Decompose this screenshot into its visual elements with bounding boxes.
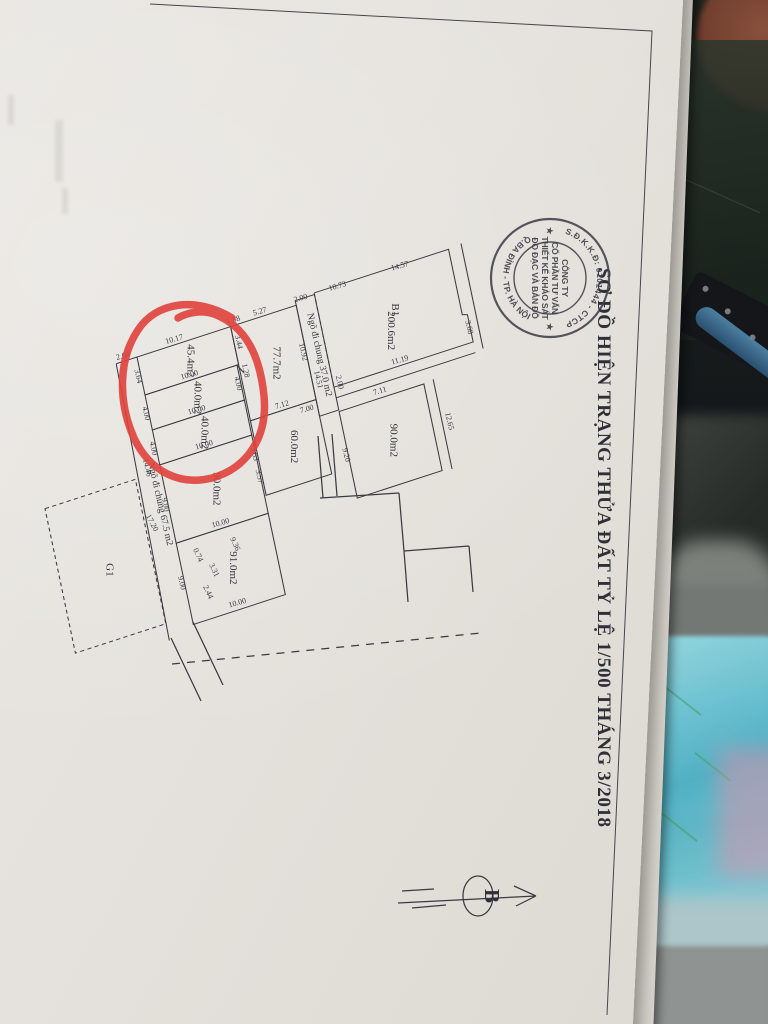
dimension-label: 0.74: [191, 547, 205, 563]
plot-linework: [19, 244, 520, 670]
dimension-label: 10.73: [327, 279, 347, 293]
plot-area-label: 200.6m2: [385, 311, 397, 350]
stamp-text-line: THIẾT KẾ KHẢO SÁT: [540, 236, 551, 320]
company-stamp: S.Đ.K.K.Đ: 0101444 - CTCP Q.BA ĐÌNH - TP…: [491, 219, 609, 337]
stamp-ring-text-bottom: Q.BA ĐÌNH - TP. HÀ NỘI: [501, 234, 533, 321]
dimension-label: 11.19: [390, 353, 409, 367]
dimension-label: 12.65: [443, 411, 456, 431]
stamp-text-line: CÔNG TY: [560, 259, 571, 297]
boundary-long-dashed: [172, 633, 481, 664]
printed-content-layer: SƠ ĐỒ HIỆN TRẠNG THỬA ĐẤT TỶ LỆ 1/500 TH…: [0, 0, 768, 1024]
dimension-label: 14.57: [390, 259, 410, 273]
plot-area-label: 90.0m2: [387, 424, 399, 457]
plot-area-label: 91.0m2: [227, 551, 239, 584]
dimension-label: 10.00: [194, 438, 214, 452]
stamp-text-line: ĐO ĐẠC VÀ BẢN ĐỒ: [530, 237, 541, 319]
dimension-label: 9.20: [340, 447, 352, 463]
dimension-label: 2.00: [293, 292, 309, 305]
dimension-label: 10.00: [179, 368, 199, 382]
photo-of-survey-document: { "title": { "text": "SƠ ĐỒ HIỆN TRẠNG T…: [0, 0, 768, 1024]
dimension-label: 3.64: [132, 368, 144, 384]
dimension-label: 10.00: [211, 516, 231, 530]
north-arrow-lines: [398, 886, 536, 908]
road-lower-left: [171, 622, 223, 701]
dimension-label: 9.00: [176, 575, 188, 591]
stamp-star-icon: ★: [545, 322, 555, 331]
dimension-label: 2.00: [334, 374, 346, 390]
north-arrow: B: [398, 876, 536, 916]
plot-area-label: 77.7m2: [270, 346, 282, 379]
dimension-label: 9.36: [228, 536, 242, 552]
plot-map: 45.4m2 40.0m2 40.0m2 90.0m2 91.0m2 77.7m…: [19, 244, 520, 701]
dimension-label: 4.00: [140, 406, 152, 422]
dimension-label: 3.57: [254, 469, 266, 485]
stamp-text-line: CỔ PHẦN TƯ VẤN: [550, 242, 561, 314]
svg-text:Q.BA ĐÌNH - TP. HÀ NỘI: Q.BA ĐÌNH - TP. HÀ NỘI: [501, 234, 533, 321]
dimension-label: 7.11: [372, 385, 388, 397]
plot-id-label: G1: [104, 563, 116, 576]
dimension-label: 2.44: [201, 584, 215, 600]
dimension-label: 10.00: [227, 596, 247, 610]
dimension-label: 4.00: [148, 441, 160, 457]
dimension-label: 4.00: [232, 376, 244, 392]
dimension-label: 3.31: [207, 562, 221, 578]
dimension-label: 10.17: [164, 332, 184, 346]
north-label: B: [480, 889, 504, 903]
plot-area-label: 60.0m2: [288, 430, 300, 463]
dimension-label: 10.00: [187, 403, 207, 417]
document-title: SƠ ĐỒ HIỆN TRẠNG THỬA ĐẤT TỶ LỆ 1/500 TH…: [593, 268, 615, 828]
dimension-label: 10.92: [297, 342, 310, 362]
stamp-star-icon: ★: [545, 226, 555, 235]
dimension-label: 3.68: [463, 319, 475, 335]
